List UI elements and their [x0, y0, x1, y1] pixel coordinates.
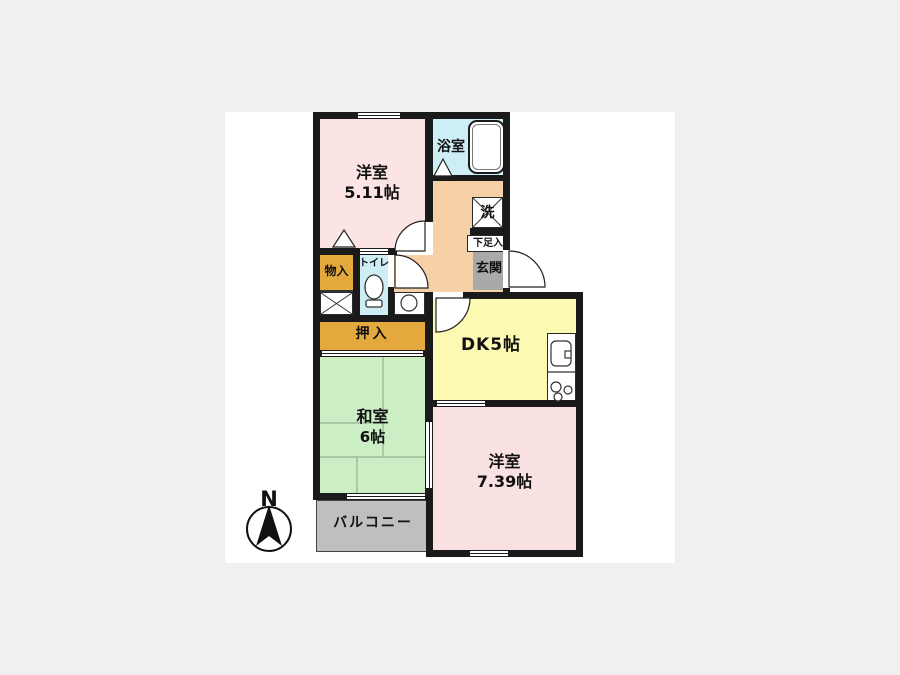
western2-name: 洋室	[488, 452, 520, 471]
wall-toilet-right	[388, 287, 394, 322]
window-bottom	[468, 550, 510, 557]
balcony-label: バルコニー	[318, 515, 428, 533]
western1-size: 5.11帖	[344, 183, 399, 202]
floor-plan-page: 洋室 5.11帖 浴室 洗 下足入 玄関 物入 トイレ 押入 DK5帖 和室 6…	[0, 0, 900, 675]
wall-closet-top	[313, 315, 433, 322]
shoe-storage-label: 下足入	[467, 238, 509, 251]
japanese-size: 6帖	[360, 428, 385, 446]
door-toilet-top	[358, 248, 390, 255]
bath-label: 浴室	[431, 139, 471, 157]
wall-right-lower	[576, 292, 583, 557]
japanese-name: 和室	[356, 407, 388, 426]
toilet-label: トイレ	[355, 258, 393, 271]
storage-crossed-box	[320, 292, 353, 315]
closet-label: 押入	[320, 326, 425, 344]
sliding-door-japanese-west2	[425, 420, 433, 490]
entrance-label: 玄関	[471, 261, 507, 277]
dk-label: DK5帖	[433, 335, 549, 356]
sliding-door-dk-west2	[435, 400, 487, 407]
compass-north-label: N	[246, 486, 292, 512]
window-top	[356, 112, 402, 119]
sliding-door-closet	[320, 350, 425, 357]
western2-size: 7.39帖	[477, 472, 532, 491]
line-storage-divider	[320, 290, 353, 292]
wall-under-washbox	[470, 228, 507, 235]
laundry-label: 洗	[472, 205, 503, 223]
wall-top	[313, 112, 510, 119]
bathtub	[468, 120, 505, 174]
window-japanese-south	[345, 493, 427, 500]
washbasin-box	[394, 292, 425, 315]
wall-bath-bottom	[433, 175, 510, 181]
wall-center-vertical	[425, 292, 433, 420]
wall-dk-top	[463, 292, 583, 299]
western2-label: 洋室 7.39帖	[433, 452, 576, 492]
western1-label: 洋室 5.11帖	[315, 163, 429, 203]
kitchen-counter	[547, 333, 576, 402]
storage-label: 物入	[318, 264, 355, 279]
hallway-lower	[394, 255, 433, 292]
western1-name: 洋室	[356, 163, 388, 182]
japanese-label: 和室 6帖	[320, 407, 425, 447]
